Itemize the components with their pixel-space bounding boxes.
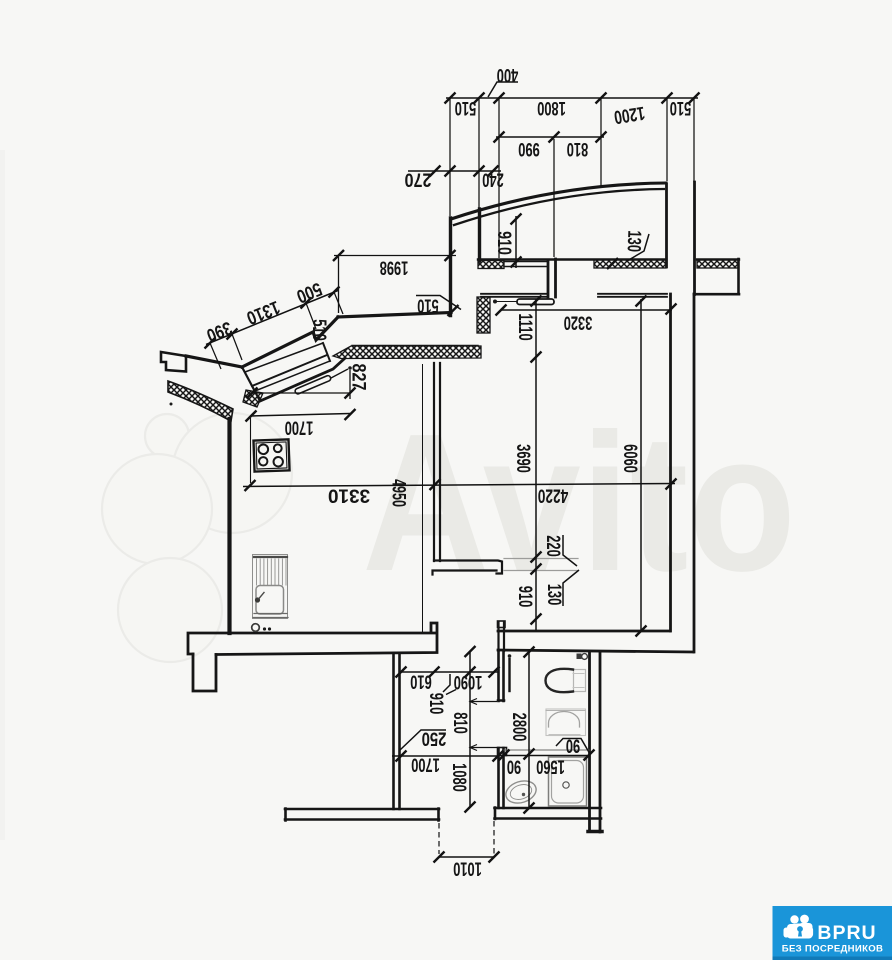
svg-text:510: 510 <box>455 97 477 118</box>
svg-text:810: 810 <box>567 138 589 159</box>
svg-text:1110: 1110 <box>514 313 535 340</box>
svg-text:БЕЗ ПОСРЕДНИКОВ: БЕЗ ПОСРЕДНИКОВ <box>782 944 883 955</box>
svg-text:400: 400 <box>497 64 519 85</box>
svg-text:810: 810 <box>449 712 470 734</box>
svg-text:3310: 3310 <box>328 485 370 506</box>
svg-text:1080: 1080 <box>448 763 469 792</box>
svg-text:510: 510 <box>417 295 439 316</box>
svg-text:827: 827 <box>348 364 370 391</box>
svg-text:4950: 4950 <box>388 479 409 507</box>
svg-text:130: 130 <box>543 584 564 606</box>
svg-text:4220: 4220 <box>538 485 568 507</box>
svg-text:1010: 1010 <box>453 858 482 879</box>
svg-text:3320: 3320 <box>564 312 593 333</box>
svg-text:220: 220 <box>542 535 563 557</box>
svg-text:130: 130 <box>623 230 645 252</box>
svg-text:510: 510 <box>670 97 692 118</box>
svg-text:90: 90 <box>507 756 521 777</box>
svg-text:910: 910 <box>425 693 446 715</box>
svg-text:240: 240 <box>482 169 504 190</box>
svg-text:6060: 6060 <box>619 444 640 473</box>
svg-text:510: 510 <box>308 319 329 341</box>
svg-text:1090: 1090 <box>454 671 483 692</box>
svg-text:90: 90 <box>566 735 580 756</box>
svg-text:910: 910 <box>493 231 514 255</box>
svg-text:1700: 1700 <box>411 754 440 775</box>
svg-text:910: 910 <box>514 586 535 608</box>
svg-text:610: 610 <box>410 671 432 692</box>
svg-text:BPRU: BPRU <box>817 922 876 944</box>
svg-text:1800: 1800 <box>537 97 566 118</box>
svg-text:1700: 1700 <box>285 417 314 438</box>
svg-text:Avito: Avito <box>362 393 796 612</box>
svg-text:3690: 3690 <box>512 444 533 473</box>
svg-text:2800: 2800 <box>508 713 529 742</box>
svg-text:270: 270 <box>404 169 431 191</box>
svg-text:1998: 1998 <box>380 257 409 278</box>
svg-text:250: 250 <box>422 728 447 749</box>
svg-text:1560: 1560 <box>536 756 565 777</box>
svg-text:990: 990 <box>518 138 540 159</box>
